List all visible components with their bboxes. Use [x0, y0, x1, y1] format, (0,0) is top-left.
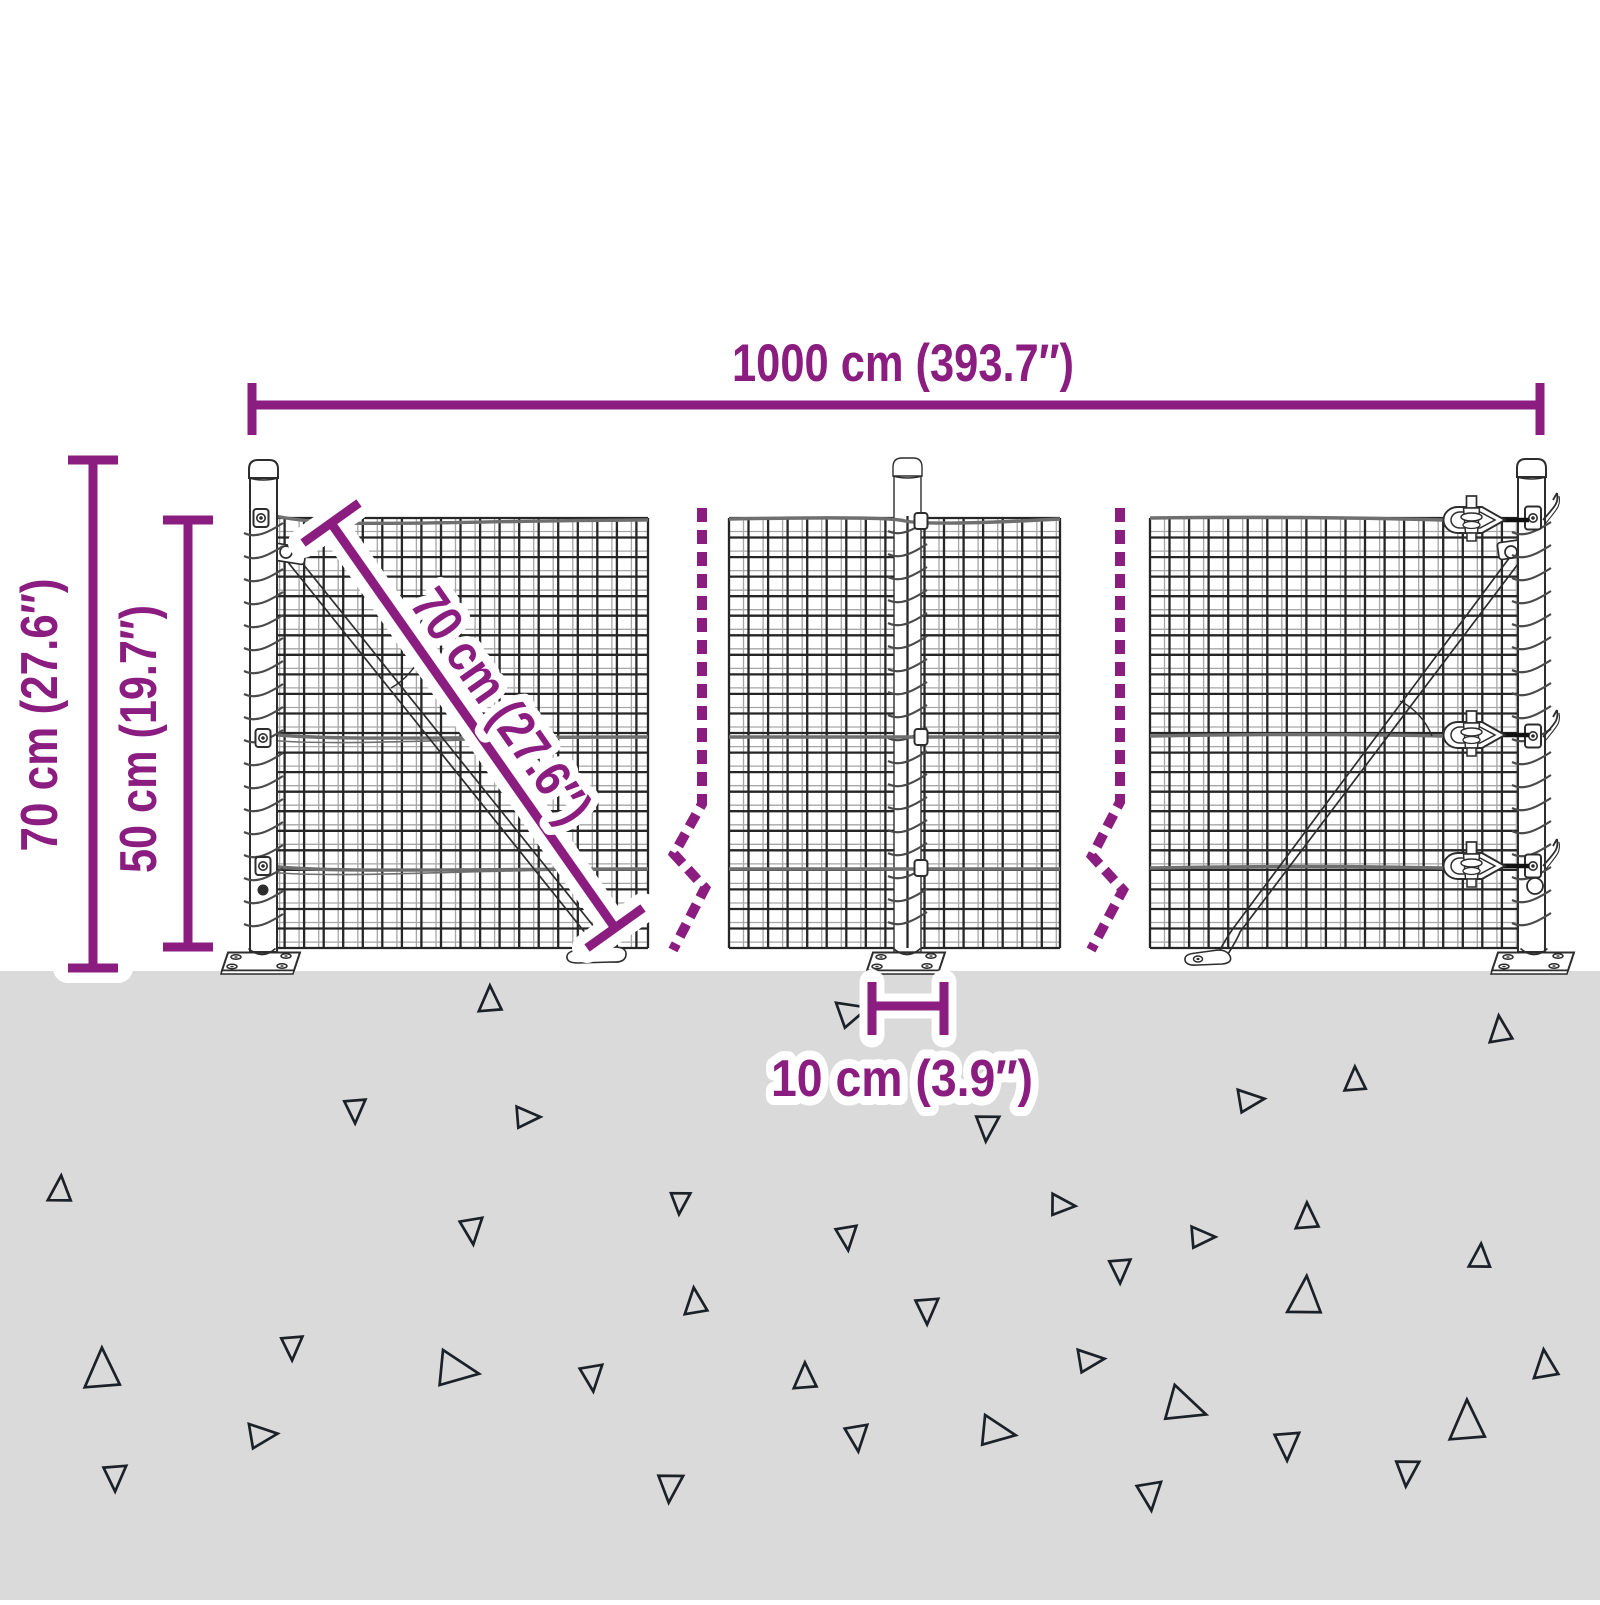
svg-text:1000 cm (393.7″): 1000 cm (393.7″): [732, 334, 1074, 393]
svg-text:50 cm (19.7″): 50 cm (19.7″): [110, 605, 168, 873]
svg-text:70 cm (27.6″): 70 cm (27.6″): [11, 579, 69, 852]
svg-text:10 cm (3.9″): 10 cm (3.9″): [771, 1050, 1033, 1108]
